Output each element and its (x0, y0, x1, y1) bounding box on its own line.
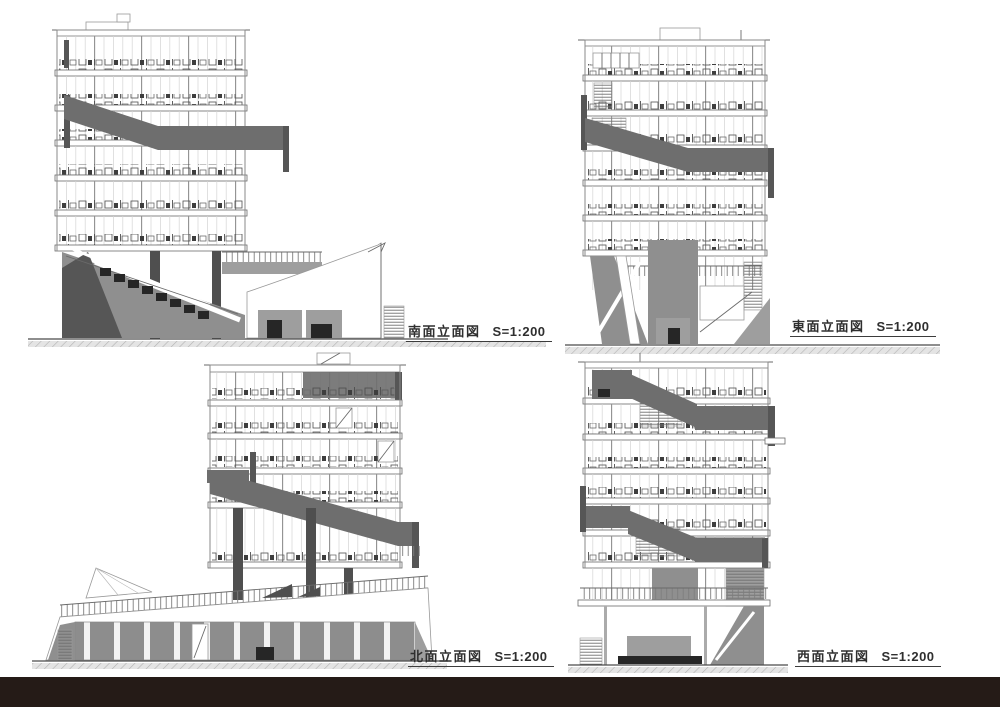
south-elevation-title: 南面立面図 (408, 324, 481, 339)
east-elevation-scale: S=1:200 (877, 319, 930, 334)
south-elevation-label: 南面立面図S=1:200 (406, 324, 552, 342)
east-elevation-drawing (565, 28, 940, 354)
south-elevation-drawing (28, 14, 546, 347)
west-elevation-scale: S=1:200 (882, 649, 935, 664)
east-elevation-title: 東面立面図 (792, 319, 865, 334)
north-ground-line (32, 661, 448, 669)
south-amphitheater (62, 248, 245, 339)
north-elevation-drawing (32, 353, 448, 669)
north-elevation-title: 北面立面図 (410, 649, 483, 664)
south-elevation-scale: S=1:200 (493, 324, 546, 339)
elevation-sheet: 南面立面図S=1:200 東面立面図S=1:200 北面立面図S=1:200 西… (0, 0, 1000, 707)
south-low-wing (222, 243, 404, 338)
west-elevation-label: 西面立面図S=1:200 (795, 649, 941, 667)
north-elevation-label: 北面立面図S=1:200 (408, 649, 554, 667)
west-base (578, 568, 770, 665)
east-ground-line (565, 345, 940, 354)
west-ground-line (568, 665, 788, 673)
west-elevation-drawing (568, 353, 788, 673)
footer-bar (0, 677, 1000, 707)
east-elevation-label: 東面立面図S=1:200 (790, 319, 936, 337)
west-elevation-title: 西面立面図 (797, 649, 870, 664)
north-elevation-scale: S=1:200 (495, 649, 548, 664)
